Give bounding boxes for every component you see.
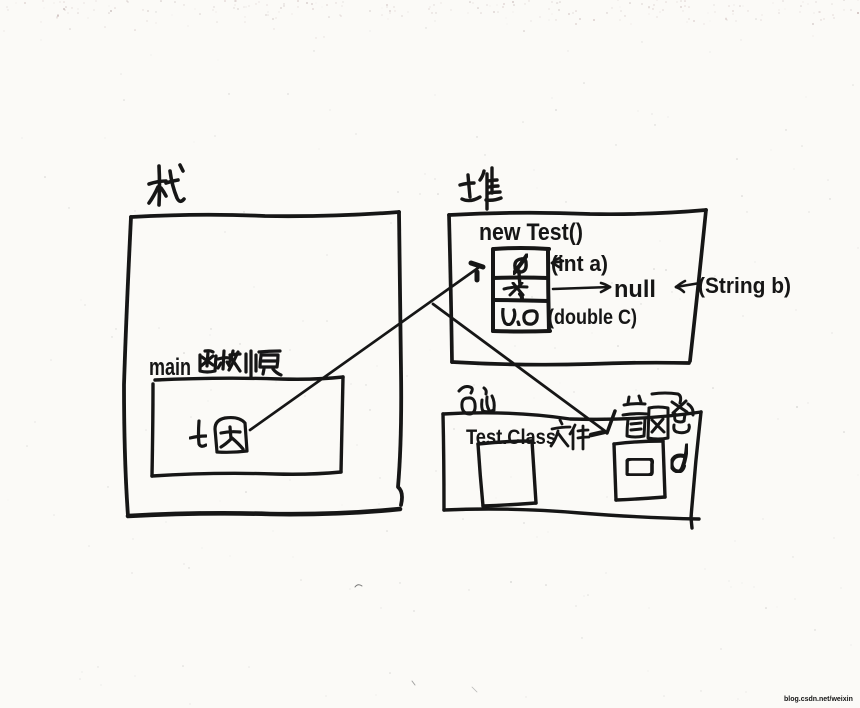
svg-text:(String b): (String b) [698, 273, 791, 298]
svg-text:(double C): (double C) [548, 306, 637, 329]
svg-text:new Test(): new Test() [479, 219, 583, 246]
svg-text:blog.csdn.net/weixin: blog.csdn.net/weixin [784, 696, 853, 703]
svg-text:(int a): (int a) [551, 251, 608, 276]
svg-text:null: null [614, 276, 656, 303]
svg-text:main: main [149, 354, 191, 381]
